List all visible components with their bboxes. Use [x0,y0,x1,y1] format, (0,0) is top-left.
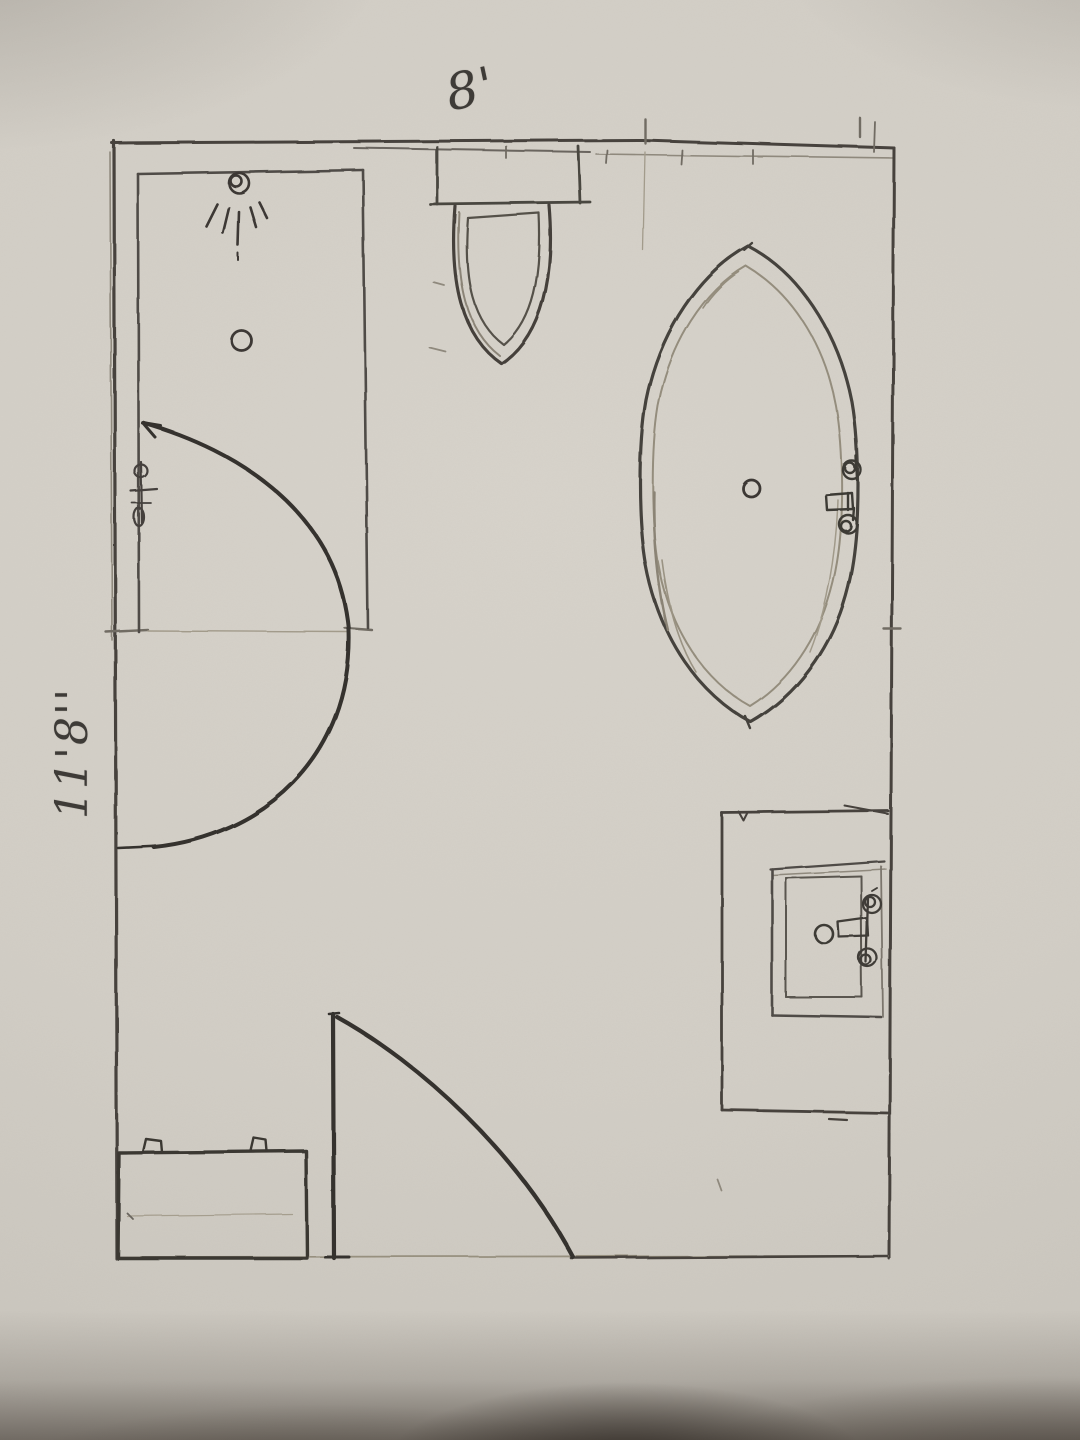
floor-plan-sketch [0,0,1080,1440]
room-depth-dimension-text: 11'8'' [47,687,98,819]
paper-sheet: 8' 11'8'' [0,0,1080,1440]
room-depth-dimension-label: 11'8'' [7,673,137,833]
